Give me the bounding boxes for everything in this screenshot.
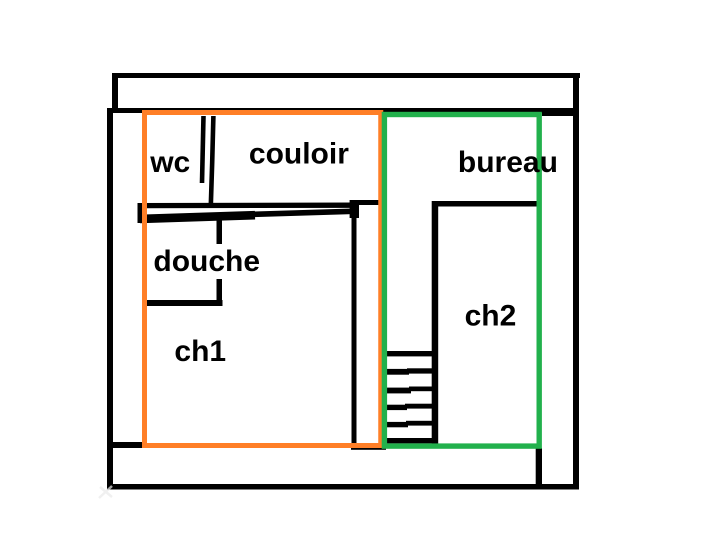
svg-text:douche: douche bbox=[153, 245, 260, 278]
svg-text:couloir: couloir bbox=[249, 138, 349, 171]
svg-text:ch1: ch1 bbox=[174, 335, 226, 368]
svg-text:ch2: ch2 bbox=[465, 299, 517, 332]
svg-text:wc: wc bbox=[149, 146, 190, 179]
svg-text:bureau: bureau bbox=[458, 146, 558, 179]
